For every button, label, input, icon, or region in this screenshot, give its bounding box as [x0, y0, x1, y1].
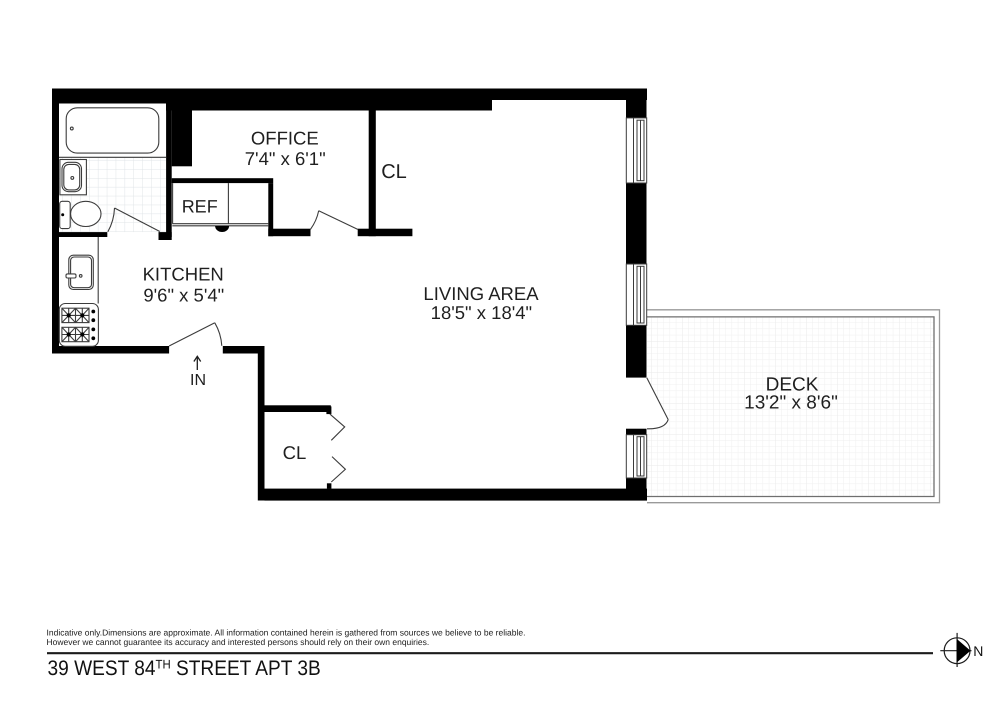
svg-text:CL: CL: [283, 442, 307, 463]
svg-text:CL: CL: [381, 161, 407, 183]
svg-text:REF: REF: [182, 196, 218, 216]
svg-text:KITCHEN: KITCHEN: [143, 264, 224, 285]
svg-text:18'5" x 18'4": 18'5" x 18'4": [431, 302, 532, 323]
svg-text:9'6" x 5'4": 9'6" x 5'4": [143, 284, 224, 305]
svg-text:IN: IN: [190, 372, 206, 389]
svg-text:Indicative only.Dimensions are: Indicative only.Dimensions are approxima…: [47, 628, 526, 638]
svg-text:OFFICE: OFFICE: [251, 127, 319, 148]
svg-text:N: N: [973, 643, 983, 659]
svg-text:39 WEST 84TH STREET APT 3B: 39 WEST 84TH STREET APT 3B: [48, 657, 321, 680]
svg-text:However we cannot guarantee it: However we cannot guarantee its accuracy…: [47, 637, 430, 647]
svg-text:7'4" x 6'1": 7'4" x 6'1": [245, 148, 326, 169]
svg-text:13'2" x 8'6": 13'2" x 8'6": [744, 392, 838, 413]
